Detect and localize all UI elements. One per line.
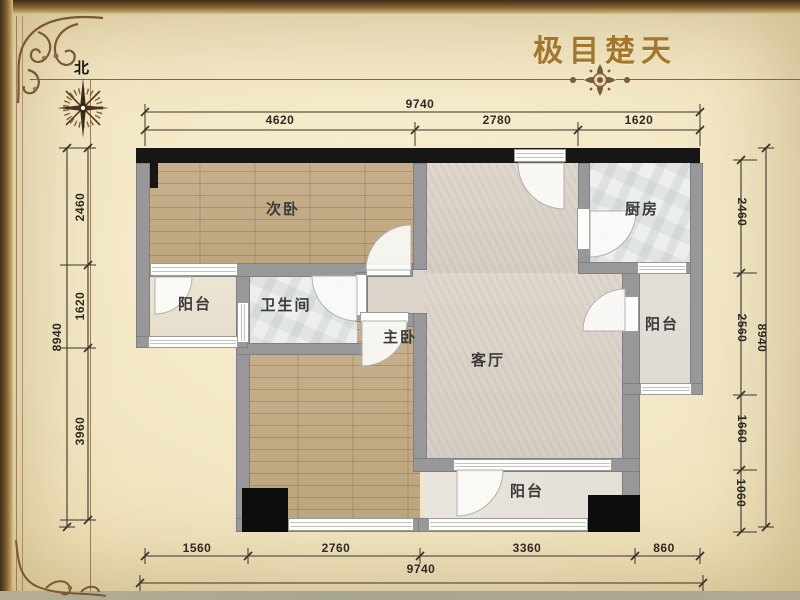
dimension-line — [696, 108, 704, 116]
wall-right-exterior — [690, 163, 703, 395]
dimension-line — [737, 156, 745, 164]
room-label-bathroom: 卫生间 — [241, 294, 331, 315]
title-divider-ornament-icon — [560, 62, 640, 98]
dimension-line — [63, 523, 71, 531]
dimension-line — [136, 579, 144, 587]
wall-left-exterior — [136, 163, 150, 348]
dimension-line — [737, 528, 745, 536]
secondary-bedroom-door-opening — [366, 264, 411, 276]
dimension-line — [141, 552, 149, 560]
kitchen-door-panel — [577, 208, 590, 250]
wall-top-exterior — [136, 148, 700, 163]
corner-flourish-bottom-left-icon — [6, 540, 126, 600]
room-living-room-floor-upper — [425, 160, 582, 275]
window-kitchen-south — [637, 262, 687, 274]
room-label-master-bedroom: 主卧 — [355, 326, 445, 347]
dim-top-seg-2: 2780 — [467, 113, 527, 127]
dim-left-seg-1: 2460 — [73, 177, 87, 237]
room-label-secondary-bedroom: 次卧 — [238, 198, 328, 219]
wall-bathroom-south — [236, 343, 368, 355]
dim-right-total: 8940 — [755, 308, 769, 368]
window-master-south — [288, 518, 414, 531]
dim-bottom-seg-2: 2760 — [306, 541, 366, 555]
dim-bottom-seg-1: 1560 — [167, 541, 227, 555]
dimension-line — [141, 108, 149, 116]
wall-living-west-upper — [413, 163, 427, 270]
pillar-bottom-right — [588, 495, 640, 532]
dimension-line — [574, 126, 582, 134]
dim-left-seg-3: 3960 — [73, 401, 87, 461]
compass-rose-icon — [48, 73, 118, 143]
dimension-line — [141, 126, 149, 134]
master-door-panel — [360, 312, 409, 323]
dimension-line — [696, 552, 704, 560]
dimension-line — [416, 552, 424, 560]
dimension-line — [762, 144, 770, 152]
room-label-balcony-left: 阳台 — [150, 293, 240, 314]
dim-left-total: 8940 — [50, 307, 64, 367]
window-balcony-left-south — [148, 336, 238, 348]
frame-top-band — [0, 0, 800, 14]
room-label-living-room: 客厅 — [443, 349, 533, 370]
dimension-line — [63, 144, 71, 152]
entry-door-opening — [514, 149, 566, 162]
dimension-line — [699, 579, 707, 587]
window-balcony-bottom-south — [428, 518, 588, 531]
dim-right-seg-2: 2560 — [735, 298, 749, 358]
dimension-line — [696, 126, 704, 134]
dimension-line — [411, 126, 419, 134]
window-living-south-unit — [453, 459, 612, 471]
room-label-balcony-right: 阳台 — [617, 313, 707, 334]
dim-top-seg-3: 1620 — [609, 113, 669, 127]
frame-inner-vertical-rule — [90, 80, 91, 600]
pillar-bottom-left — [242, 488, 288, 532]
dim-bottom-total: 9740 — [391, 562, 451, 576]
dimension-line — [737, 269, 745, 277]
dim-left-seg-2: 1620 — [73, 276, 87, 336]
dim-bottom-seg-3: 3360 — [497, 541, 557, 555]
bathroom-door-panel — [355, 274, 367, 316]
room-label-kitchen: 厨房 — [597, 198, 687, 219]
frame-divider-rule — [30, 79, 800, 80]
dimension-line — [737, 391, 745, 399]
dim-top-total: 9740 — [390, 97, 450, 111]
dim-right-seg-3: 1660 — [735, 399, 749, 459]
dim-bottom-seg-4: 860 — [634, 541, 694, 555]
dim-right-seg-1: 2460 — [735, 182, 749, 242]
dimension-line — [244, 552, 252, 560]
window-balcony-right-south — [640, 383, 692, 395]
window-balcony-left-door-unit — [150, 263, 238, 276]
dim-right-seg-4: 1060 — [734, 463, 748, 523]
room-label-balcony-bottom: 阳台 — [482, 480, 572, 501]
floor-plan-page: 极目楚天 北 — [0, 0, 800, 600]
dimension-line — [762, 523, 770, 531]
dim-top-seg-1: 4620 — [250, 113, 310, 127]
